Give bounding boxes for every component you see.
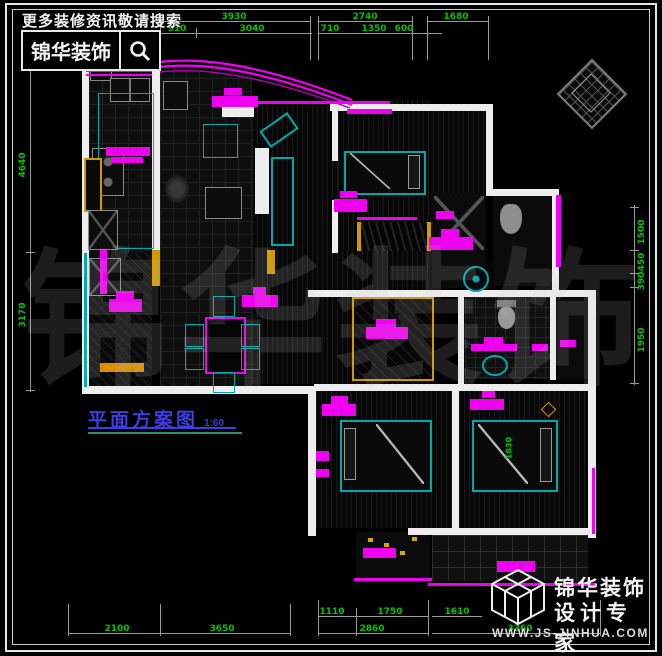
bed-pillow bbox=[540, 428, 552, 482]
wardrobe bbox=[357, 222, 431, 251]
dim-extender bbox=[290, 604, 291, 636]
dim-extender bbox=[428, 600, 429, 636]
kitchen-cabinet bbox=[88, 210, 118, 250]
dining-table bbox=[205, 317, 246, 374]
dim-extender bbox=[412, 16, 413, 60]
right-closet-floor bbox=[558, 297, 588, 379]
dim-line bbox=[634, 205, 635, 385]
dim-label: 1830 bbox=[505, 437, 514, 459]
dim-tick bbox=[26, 252, 35, 253]
dim-extender bbox=[318, 600, 319, 636]
highlight-block bbox=[363, 548, 396, 558]
window-line bbox=[258, 101, 390, 104]
search-box[interactable]: 锦华装饰 bbox=[21, 30, 161, 71]
highlight-block bbox=[111, 157, 143, 163]
highlight-block bbox=[334, 199, 367, 212]
deco-speck bbox=[368, 538, 373, 542]
bench bbox=[100, 363, 144, 372]
bed-fold-line bbox=[350, 153, 390, 189]
dining-chair bbox=[185, 324, 204, 347]
deco-speck bbox=[400, 551, 405, 555]
railing-line bbox=[354, 578, 432, 581]
diamond-compass-stamp-icon bbox=[556, 58, 626, 128]
wall bbox=[255, 148, 269, 214]
highlight-block bbox=[560, 340, 576, 347]
highlight-block bbox=[366, 327, 408, 339]
dim-label: 1500 bbox=[637, 219, 647, 244]
wall bbox=[308, 388, 316, 536]
dim-label: 600 bbox=[395, 24, 414, 34]
dim-label: 2100 bbox=[104, 624, 129, 634]
highlight-block bbox=[242, 295, 278, 307]
dim-extender bbox=[488, 16, 489, 60]
floorplan-drawing: 更多装修资讯敬请搜索 锦华装饰 3930 2740 1 bbox=[0, 0, 662, 656]
highlight-block bbox=[109, 299, 142, 312]
walk-in-closet bbox=[352, 297, 434, 381]
sofa bbox=[271, 157, 294, 246]
dim-label: 2860 bbox=[359, 624, 384, 634]
bed-pillow bbox=[408, 155, 420, 189]
window-line bbox=[86, 74, 152, 76]
dining-chair bbox=[213, 372, 235, 393]
highlight-block bbox=[331, 396, 348, 404]
dim-tick bbox=[630, 207, 639, 208]
cube-logo-icon bbox=[488, 568, 548, 626]
dining-chair bbox=[241, 348, 260, 370]
window-line bbox=[556, 195, 561, 267]
highlight-block bbox=[482, 391, 495, 398]
dim-label: 710 bbox=[321, 24, 340, 34]
highlight-block bbox=[429, 237, 473, 250]
header-tagline: 更多装修资讯敬请搜索 bbox=[22, 10, 182, 31]
dim-label: 3650 bbox=[209, 624, 234, 634]
dim-line bbox=[30, 68, 31, 392]
dim-extender bbox=[160, 604, 161, 636]
toilet-tank bbox=[497, 300, 516, 307]
highlight-block bbox=[470, 399, 504, 410]
highlight-block bbox=[376, 319, 396, 327]
wall bbox=[486, 104, 493, 196]
highlight-block bbox=[357, 217, 417, 220]
deco-speck bbox=[384, 543, 389, 547]
highlight-block bbox=[322, 404, 356, 416]
tall-cabinet bbox=[84, 158, 102, 212]
dim-line bbox=[68, 633, 290, 634]
website-url: WWW.JS-JINHUA.COM bbox=[492, 626, 649, 640]
dim-label: 1350 bbox=[361, 24, 386, 34]
highlight-block bbox=[116, 291, 134, 299]
wall bbox=[550, 296, 556, 380]
dim-label: 1110 bbox=[319, 607, 344, 617]
dim-tick bbox=[196, 28, 197, 38]
header-brand: 锦华装饰 bbox=[23, 32, 119, 69]
dim-label: 3040 bbox=[239, 24, 264, 34]
bathroom-sink bbox=[482, 355, 508, 376]
wall bbox=[458, 296, 464, 384]
highlight-block bbox=[532, 344, 548, 351]
dim-extender bbox=[356, 608, 357, 636]
dim-label: 1750 bbox=[377, 607, 402, 617]
dim-label: 1680 bbox=[443, 12, 468, 22]
bed-pillow bbox=[344, 428, 356, 480]
dim-label: 1610 bbox=[444, 607, 469, 617]
dining-chair bbox=[241, 324, 260, 347]
toilet bbox=[498, 307, 515, 329]
highlight-block bbox=[100, 250, 107, 294]
washing-machine bbox=[463, 266, 489, 292]
dim-label: 450 bbox=[637, 253, 647, 272]
dim-label: 390 bbox=[637, 272, 647, 291]
wall bbox=[332, 111, 338, 161]
cabinet bbox=[205, 187, 242, 219]
highlight-block bbox=[106, 147, 150, 156]
highlight-block bbox=[340, 191, 357, 198]
wall bbox=[486, 189, 558, 196]
window-line bbox=[592, 468, 595, 534]
highlight-block bbox=[484, 337, 503, 344]
highlight-block bbox=[316, 469, 329, 477]
deco-speck bbox=[412, 537, 417, 541]
search-icon[interactable] bbox=[121, 32, 159, 69]
wall bbox=[408, 528, 596, 535]
wall bbox=[452, 390, 459, 530]
plant bbox=[165, 175, 189, 203]
dim-label: 3170 bbox=[18, 302, 28, 327]
wall-finish-line bbox=[84, 253, 87, 387]
door-frame bbox=[152, 250, 160, 286]
dim-tick bbox=[630, 383, 639, 384]
dining-chair bbox=[213, 296, 235, 317]
dim-label: 1950 bbox=[637, 327, 647, 352]
title-underline bbox=[88, 427, 236, 429]
dim-extender bbox=[427, 16, 428, 60]
dim-tick bbox=[630, 250, 639, 251]
bed-fold-line bbox=[478, 424, 528, 484]
dim-tick bbox=[26, 390, 35, 391]
vanity-highlight bbox=[436, 211, 454, 219]
dim-label: 4640 bbox=[18, 152, 28, 177]
highlight-block bbox=[212, 96, 258, 107]
highlight-block bbox=[316, 451, 329, 461]
door-frame bbox=[267, 250, 275, 274]
title-underline bbox=[88, 432, 242, 434]
window-line bbox=[347, 109, 392, 114]
side-table bbox=[203, 124, 238, 158]
bed-fold-line bbox=[376, 424, 424, 484]
highlight-block bbox=[471, 344, 517, 351]
highlight-block bbox=[253, 287, 266, 295]
highlight-block bbox=[224, 88, 242, 95]
dim-label: 2740 bbox=[352, 12, 377, 22]
dim-label: 3930 bbox=[221, 12, 246, 22]
dining-chair bbox=[185, 348, 204, 370]
highlight-block bbox=[441, 229, 459, 237]
dim-extender bbox=[68, 604, 69, 636]
wall bbox=[82, 386, 316, 394]
toilet bbox=[500, 204, 522, 234]
